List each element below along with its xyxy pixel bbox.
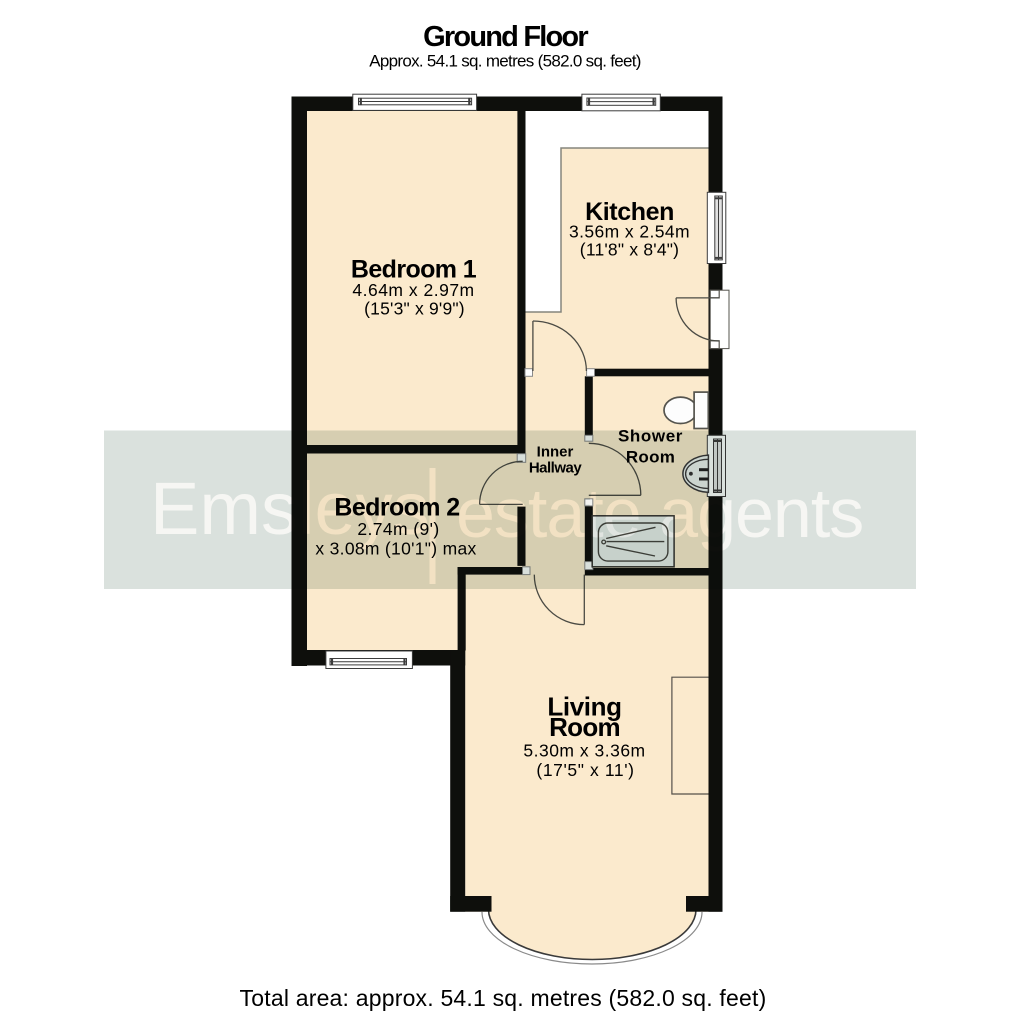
svg-text:3.56m x 2.54m: 3.56m x 2.54m: [569, 222, 690, 242]
svg-text:Room: Room: [549, 712, 620, 742]
svg-text:Emsleys: Emsleys: [150, 467, 430, 550]
svg-text:(17'5" x 11'): (17'5" x 11'): [536, 760, 634, 780]
svg-text:Approx. 54.1 sq. metres (582.0: Approx. 54.1 sq. metres (582.0 sq. feet): [369, 52, 641, 71]
svg-text:5.30m x 3.36m: 5.30m x 3.36m: [523, 741, 645, 761]
svg-text:(15'3" x 9'9"): (15'3" x 9'9"): [364, 299, 465, 319]
svg-text:4.64m x 2.97m: 4.64m x 2.97m: [352, 280, 474, 300]
svg-text:Total area: approx. 54.1 sq. m: Total area: approx. 54.1 sq. metres (582…: [240, 985, 767, 1011]
svg-text:estate agents: estate agents: [456, 474, 863, 552]
svg-text:(11'8" x 8'4"): (11'8" x 8'4"): [580, 240, 679, 260]
svg-text:Ground Floor: Ground Floor: [423, 21, 588, 53]
